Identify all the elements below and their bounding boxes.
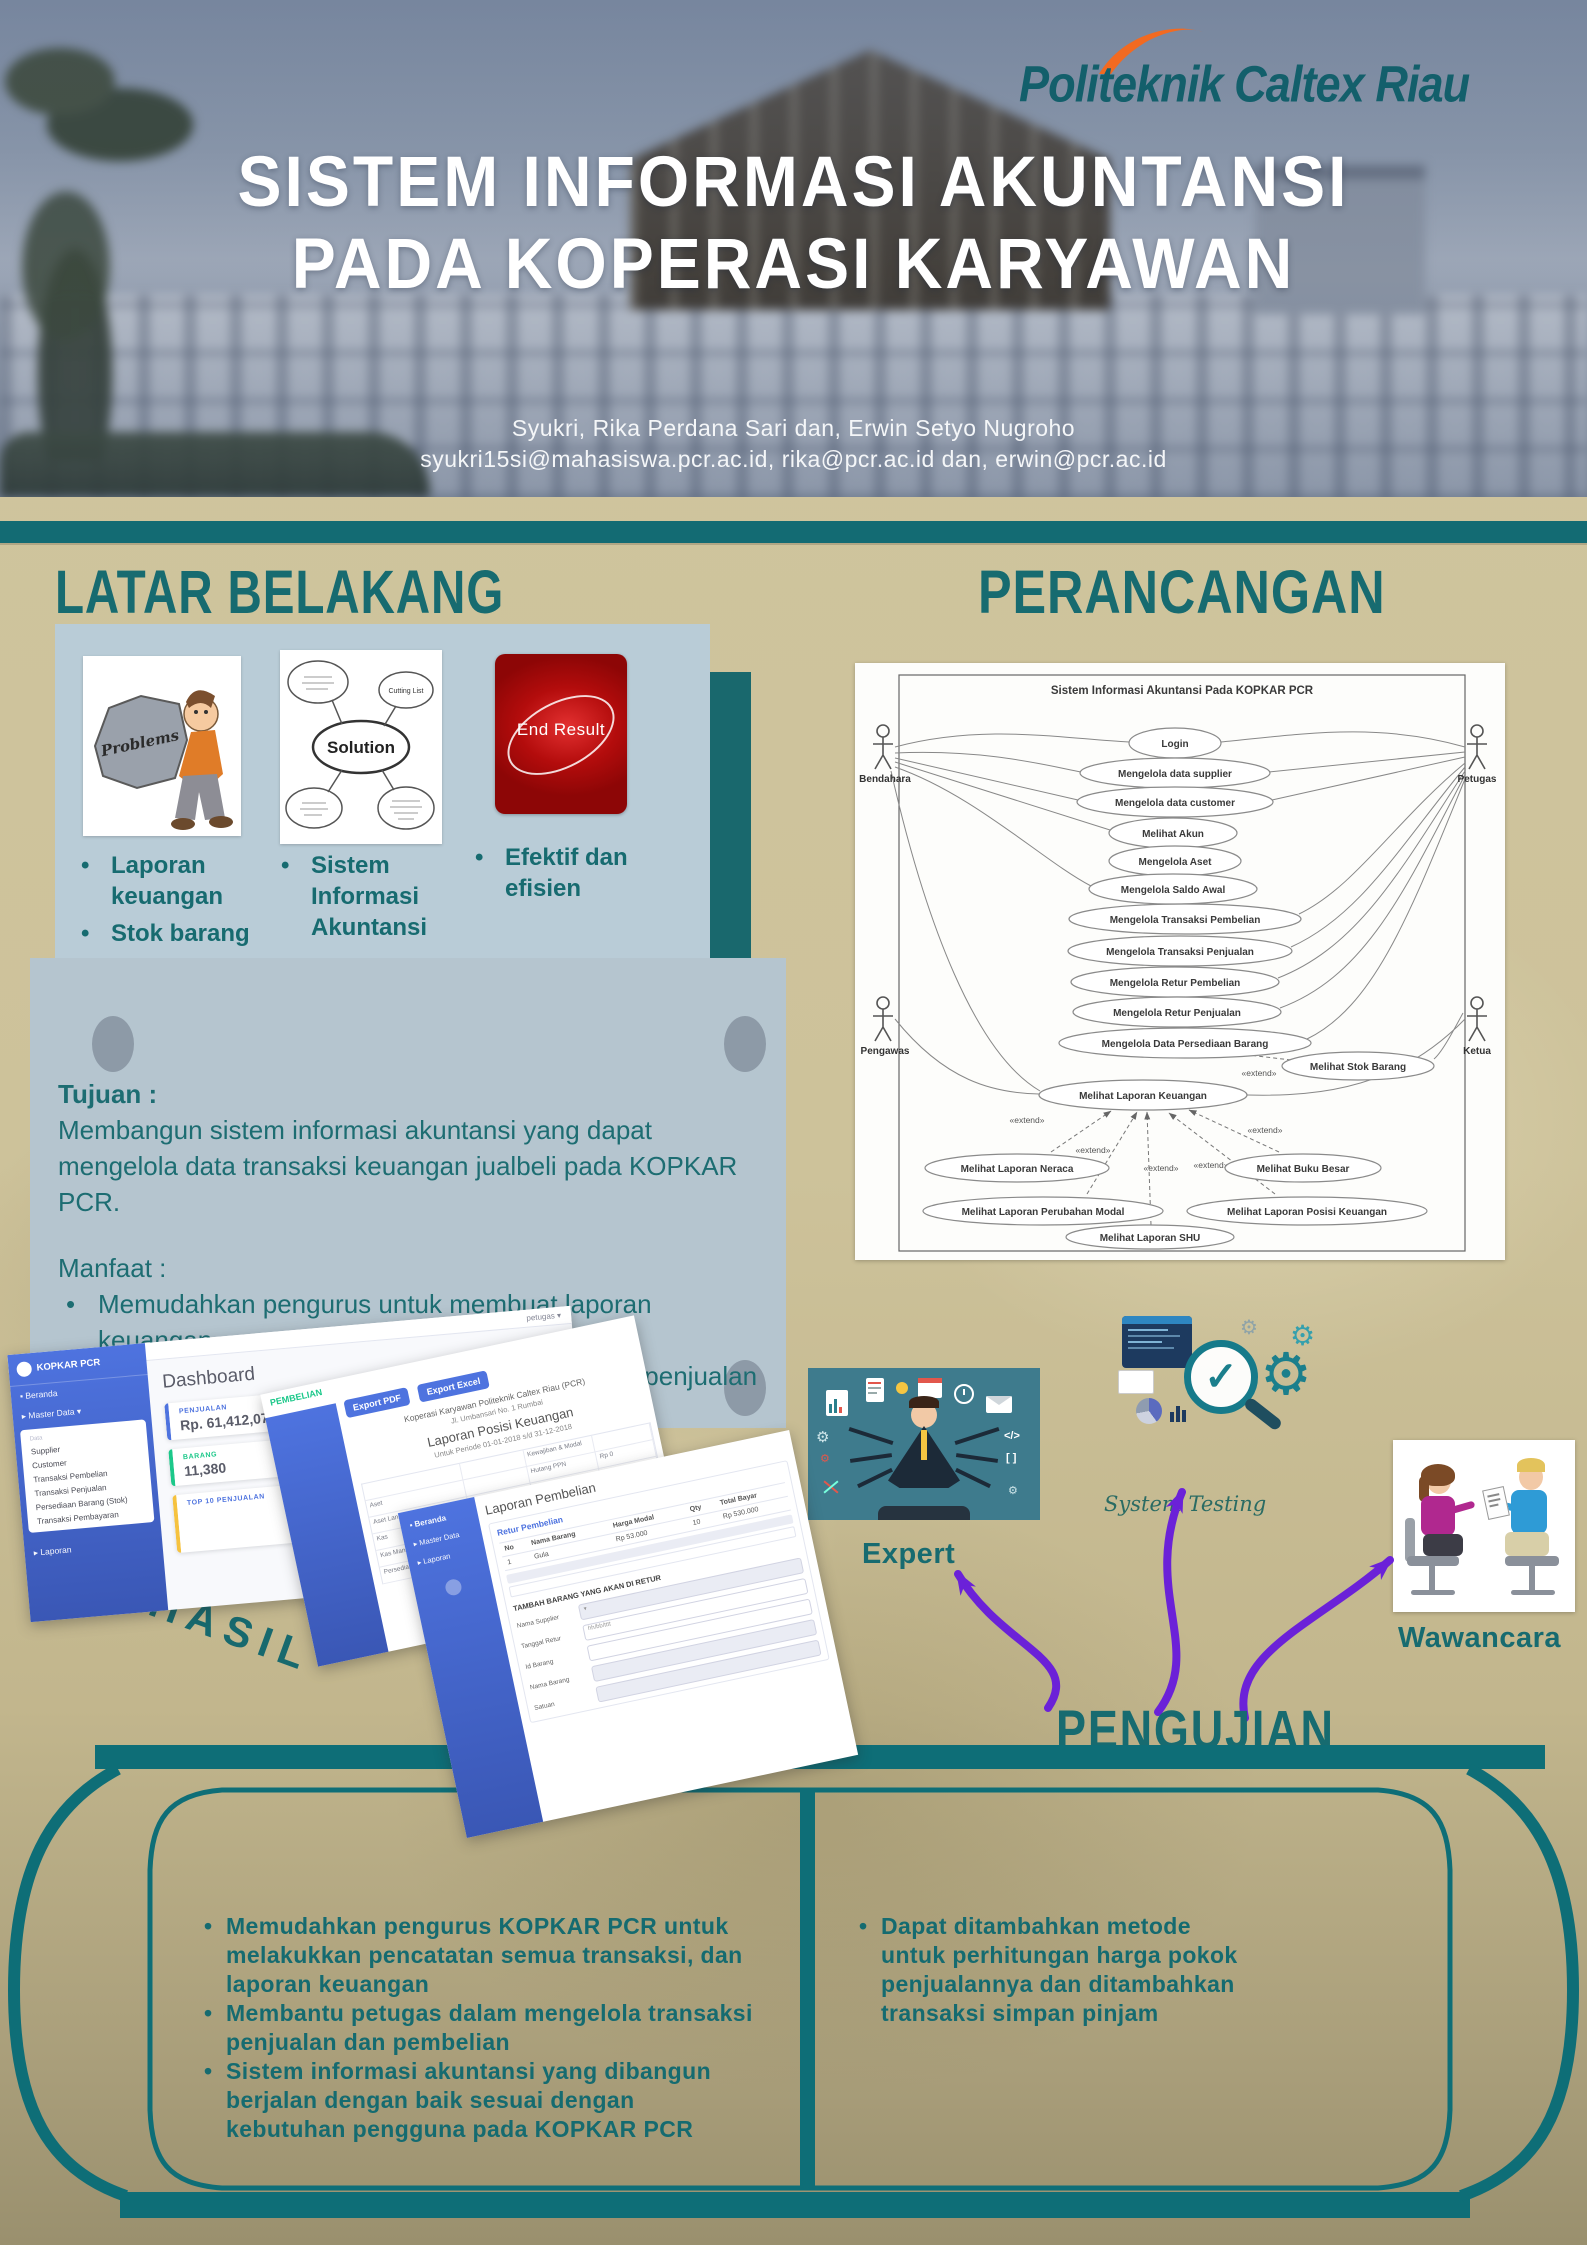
sidebar-submenu: Data Supplier Customer Transaksi Pembeli… (20, 1419, 154, 1533)
bulb-icon (896, 1382, 908, 1394)
actor-bendahara: Bendahara (859, 725, 911, 785)
extend-label: «extend» (1194, 1160, 1229, 1170)
pie-chart-icon (1136, 1398, 1162, 1424)
use-case-label: Mengelola Retur Penjualan (1113, 1008, 1241, 1019)
mail-icon (986, 1396, 1012, 1413)
latar-bullets-col1: Laporan keuangan Stok barang (81, 850, 271, 955)
actor-label: Petugas (1458, 774, 1497, 785)
use-case-label: Melihat Laporan SHU (1100, 1233, 1201, 1244)
extend-label: «extend» (1144, 1163, 1179, 1173)
heading-latar-belakang: LATAR BELAKANG (55, 556, 504, 628)
use-case-label: Mengelola Aset (1139, 857, 1213, 868)
use-case-label: Melihat Laporan Keuangan (1079, 1091, 1207, 1102)
person-legs (1505, 1532, 1549, 1556)
use-case-label: Mengelola Retur Pembelian (1110, 978, 1241, 989)
end-result-image: End Result (495, 654, 627, 814)
app-logo-icon (16, 1361, 32, 1377)
arrow-to-expert (958, 1574, 1056, 1708)
conclusion-right-list: Dapat ditambahkan metode untuk perhitung… (855, 1912, 1255, 2028)
extend-label: «extend» (1242, 1068, 1277, 1078)
latar-bullet: Stok barang (81, 918, 271, 949)
expert-arm (850, 1453, 892, 1463)
use-case-label: Melihat Laporan Posisi Keuangan (1227, 1207, 1387, 1218)
actor-label: Bendahara (859, 774, 911, 785)
conclusion-item: Dapat ditambahkan metode untuk perhitung… (855, 1912, 1255, 2028)
author-emails: syukri15si@mahasiswa.pcr.ac.id, rika@pcr… (0, 444, 1587, 475)
use-case-label: Mengelola data supplier (1118, 769, 1232, 780)
gear-icon: ⚙ (816, 1428, 829, 1446)
bar-icon (1182, 1410, 1186, 1422)
clipboard-icon (1482, 1486, 1510, 1520)
poster-title: SISTEM INFORMASI AKUNTANSI PADA KOPERASI… (0, 140, 1587, 304)
expert-arm (857, 1468, 893, 1488)
terminal-window (1118, 1370, 1154, 1394)
person-torso (1511, 1490, 1547, 1534)
use-case-label: Melihat Akun (1142, 829, 1204, 840)
pcr-logo: Politeknik Caltex Riau (989, 28, 1569, 124)
actor-ketua: Ketua (1463, 997, 1491, 1057)
extend-label: «extend» (1248, 1125, 1283, 1135)
use-case-diagram: Sistem Informasi Akuntansi Pada KOPKAR P… (855, 663, 1505, 1260)
manfaat-heading: Manfaat : (58, 1250, 768, 1286)
expert-arm (955, 1427, 1000, 1445)
latar-bullets-col2: Sistem Informasi Akuntansi (281, 850, 461, 949)
system-testing-image: ⚙ ⚙ ⚙ ✓ (1122, 1316, 1322, 1476)
latar-bullet: Sistem Informasi Akuntansi (281, 850, 461, 943)
corner-dot (92, 1016, 134, 1072)
heading-perancangan: PERANCANGAN (978, 556, 1386, 628)
latar-card: Problems Solution Cutting List (55, 624, 710, 986)
code-window (1122, 1316, 1192, 1368)
chair-seat (1505, 1556, 1559, 1566)
code-icon: </> (1004, 1430, 1020, 1442)
logo-text: Politeknik Caltex Riau (1019, 54, 1469, 113)
use-case-label: Mengelola Saldo Awal (1121, 885, 1226, 896)
use-case-label: Melihat Stok Barang (1310, 1062, 1406, 1073)
document-icon (866, 1378, 884, 1402)
chart-icon (826, 1390, 848, 1416)
tujuan-body: Membangun sistem informasi akuntansi yan… (58, 1112, 768, 1220)
use-case-label: Mengelola data customer (1115, 798, 1235, 809)
diagram-title: Sistem Informasi Akuntansi Pada KOPKAR P… (1051, 685, 1314, 697)
export-pdf-button: Export PDF (343, 1387, 410, 1418)
actor-pengawas: Pengawas (861, 997, 910, 1057)
clock-icon (954, 1384, 974, 1404)
use-case-label: Mengelola Data Persediaan Barang (1102, 1039, 1269, 1050)
sidebar-item-laporan: ▸ Laporan (24, 1531, 163, 1564)
actor-label: Pengawas (861, 1046, 910, 1057)
expert-head (911, 1402, 937, 1428)
solution-image: Solution Cutting List (280, 650, 442, 844)
use-case-label: Login (1161, 739, 1188, 750)
latar-bullets-col3: Efektif dan efisien (475, 842, 700, 910)
chair-base (1511, 1590, 1555, 1595)
app-brand: KOPKAR PCR (36, 1357, 101, 1374)
divider-bar (0, 521, 1587, 543)
latar-bullet: Efektif dan efisien (475, 842, 700, 904)
use-case-label: Melihat Buku Besar (1257, 1164, 1350, 1175)
poster: Politeknik Caltex Riau SISTEM INFORMASI … (0, 0, 1587, 2245)
actor-petugas: Petugas (1458, 725, 1497, 785)
tujuan-heading: Tujuan : (58, 1079, 157, 1109)
use-case-label: Melihat Laporan Perubahan Modal (962, 1207, 1125, 1218)
collapse-button (444, 1578, 463, 1597)
chair-post (1529, 1566, 1535, 1592)
use-case-label: Melihat Laporan Neraca (961, 1164, 1074, 1175)
extend-label: «extend» (1076, 1145, 1111, 1155)
gear-icon: ⚙ (820, 1452, 830, 1465)
bar-icon (1170, 1412, 1174, 1422)
conclusion-left-list: Memudahkan pengurus KOPKAR PCR untuk mel… (200, 1912, 760, 2144)
arrow-to-wawancara (1243, 1560, 1390, 1718)
dashboard-sidebar: KOPKAR PCR ▪ Beranda ▸ Master Data ▾ Dat… (7, 1343, 168, 1622)
gear-icon: ⚙ (1290, 1322, 1315, 1350)
latar-bullet: Laporan keuangan (81, 850, 271, 912)
authors-block: Syukri, Rika Perdana Sari dan, Erwin Set… (0, 413, 1587, 475)
gear-icon: ⚙ (1260, 1346, 1312, 1404)
author-names: Syukri, Rika Perdana Sari dan, Erwin Set… (0, 413, 1587, 444)
cutting-list-label: Cutting List (388, 688, 423, 695)
conclusion-item: Memudahkan pengurus KOPKAR PCR untuk mel… (200, 1912, 760, 1999)
problems-image: Problems (83, 656, 241, 836)
use-cases: Login Mengelola data supplier Mengelola … (923, 728, 1434, 1249)
pembelian-tag: PEMBELIAN (269, 1387, 323, 1408)
conclusion-item: Membantu petugas dalam mengelola transak… (200, 1999, 760, 2057)
title-line-1: SISTEM INFORMASI AKUNTANSI (0, 140, 1587, 222)
use-case-label: Mengelola Transaksi Penjualan (1106, 947, 1254, 958)
arrow-to-system-testing (1158, 1492, 1182, 1712)
solution-label: Solution (327, 738, 395, 757)
use-case-label: Mengelola Transaksi Pembelian (1110, 915, 1261, 926)
end-result-label: End Result (495, 720, 627, 740)
check-icon: ✓ (1204, 1355, 1238, 1399)
extend-label: «extend» (1010, 1115, 1045, 1125)
calendar-icon (918, 1378, 942, 1398)
user-menu: petugas (526, 1311, 555, 1322)
brackets-icon: [ ] (1006, 1452, 1016, 1464)
expert-arm (849, 1427, 894, 1445)
expert-arm (956, 1453, 998, 1463)
gear-icon: ⚙ (1240, 1318, 1258, 1338)
actor-label: Ketua (1463, 1046, 1491, 1057)
title-line-2: PADA KOPERASI KARYAWAN (0, 222, 1587, 304)
bar-icon (1176, 1406, 1180, 1422)
corner-dot (724, 1016, 766, 1072)
person-head (1519, 1464, 1543, 1490)
conclusion-item: Sistem informasi akuntansi yang dibangun… (200, 2057, 760, 2144)
